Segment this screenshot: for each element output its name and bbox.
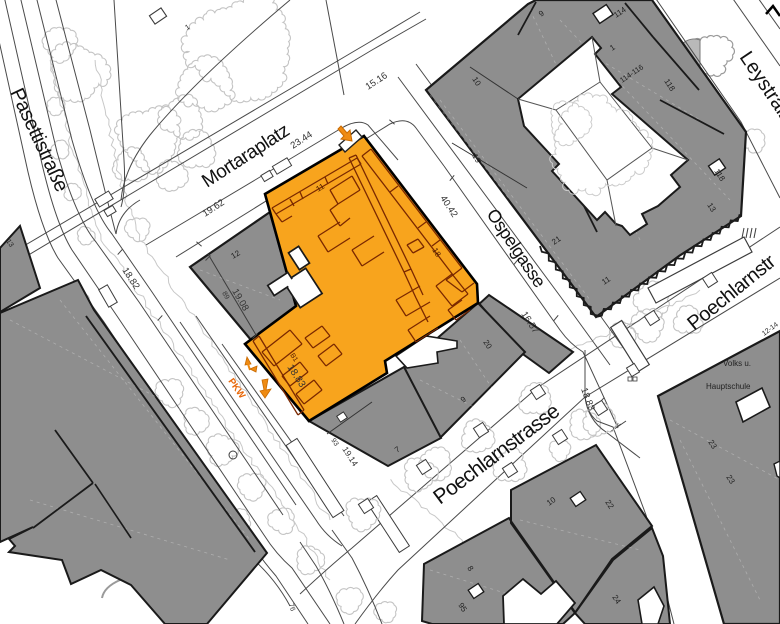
svg-text:Volks u.: Volks u.	[723, 359, 751, 368]
svg-text:Hauptschule: Hauptschule	[706, 382, 751, 391]
